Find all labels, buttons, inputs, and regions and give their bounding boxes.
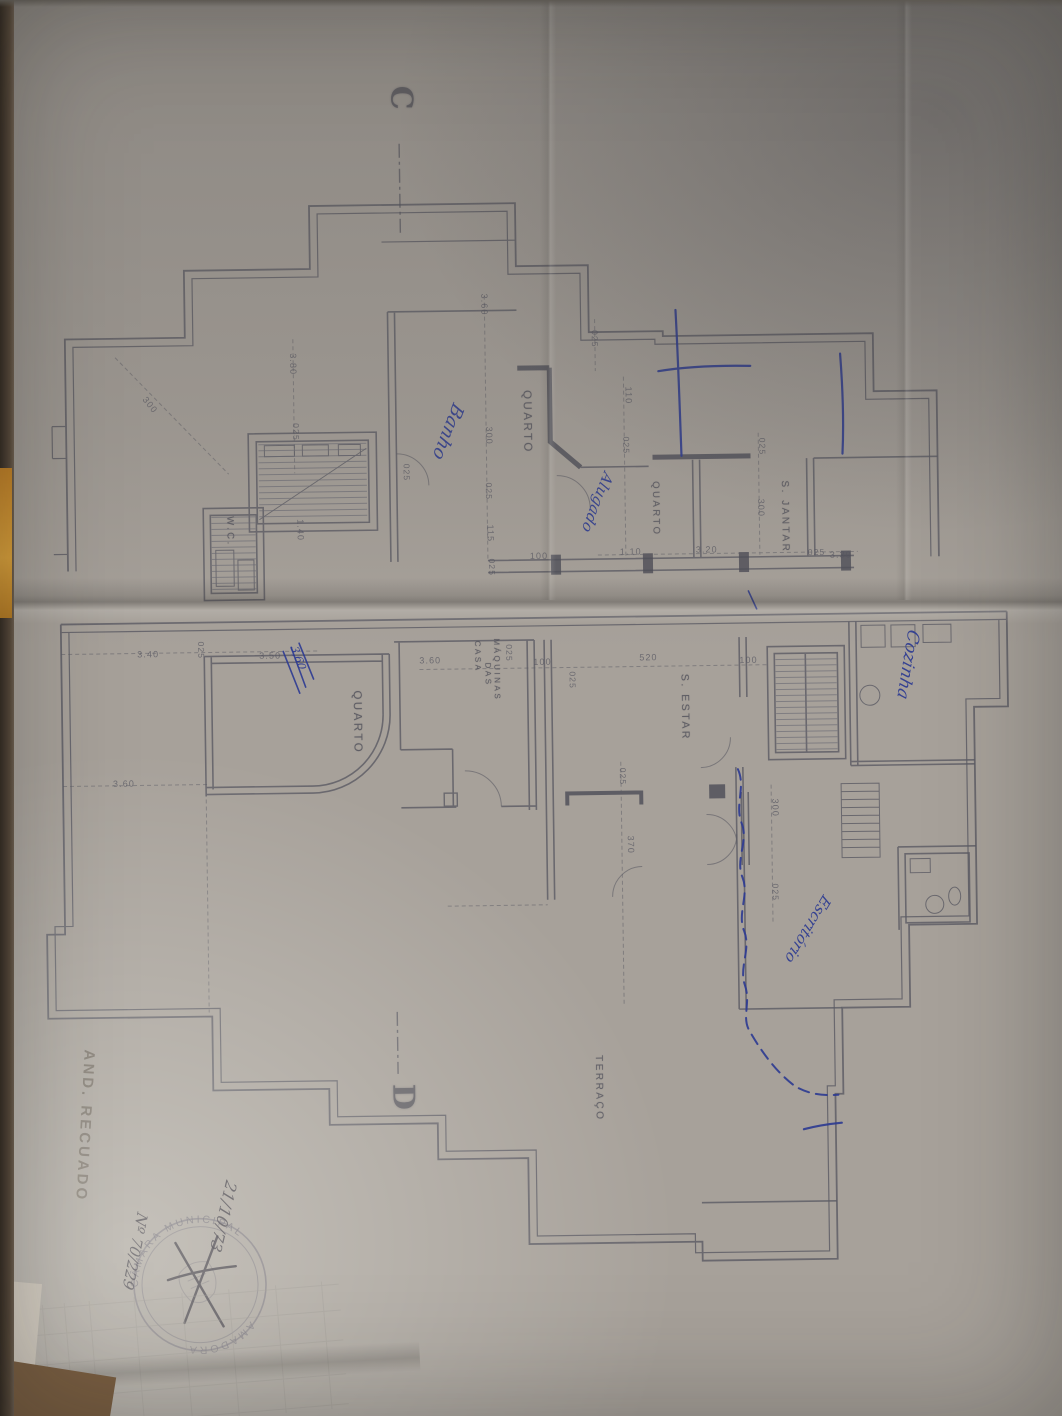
dimension-label: 025 xyxy=(618,768,627,786)
dimension-label: 025 xyxy=(771,884,780,902)
note-escritorio: Escritório xyxy=(782,892,833,966)
dimension-label: 300 xyxy=(756,499,765,517)
dimension-label: 300 xyxy=(770,799,779,817)
dimension-label: 520 xyxy=(639,653,657,662)
note-alugado: Alugado xyxy=(579,469,615,535)
section-marker-d: D xyxy=(387,1084,417,1110)
room-label-wc: W.C. xyxy=(225,516,235,547)
blueprint-photo: CÂMARA MUNICIPAL AMADORA CDQUARTOQUARTOQ… xyxy=(0,0,1062,1416)
dimension-label: 025 xyxy=(568,671,577,689)
dimension-label: 100 xyxy=(739,656,757,665)
stamp-note-number: Nº 70/229 xyxy=(120,1210,149,1291)
dimension-label: 110 xyxy=(624,387,633,405)
paper-crease-vertical-1 xyxy=(540,0,556,600)
dimension-label: 3.40 xyxy=(137,650,159,659)
dimension-label: 025 xyxy=(505,644,514,662)
dimension-label: 3.80 xyxy=(288,353,297,375)
room-label-terraco: TERRAÇO xyxy=(593,1055,604,1122)
room-label-s-estar: S. ESTAR xyxy=(679,674,690,741)
dimension-label: 025 xyxy=(292,423,301,441)
room-label-maquinas: MÁQUINAS xyxy=(492,638,501,701)
dimension-label: 300 xyxy=(141,395,159,415)
room-label-quarto-3: QUARTO xyxy=(350,690,362,754)
dimension-label: 025 xyxy=(590,330,599,348)
dimension-label: 025 xyxy=(808,548,826,557)
dimension-label: 025 xyxy=(197,642,206,660)
room-label-s-jantar: S. JANTAR xyxy=(779,480,790,553)
dimension-label: 025 xyxy=(487,558,496,576)
orange-object-edge xyxy=(0,468,12,618)
dimension-label: 300 xyxy=(484,427,493,445)
note-and-recuado: AND. RECUADO xyxy=(73,1049,96,1202)
paper-crease-vertical-2 xyxy=(896,0,912,600)
dimension-label: 025 xyxy=(402,464,411,482)
dimension-label: 1.40 xyxy=(295,519,304,541)
stamp-note-date: 21/10/73 xyxy=(207,1178,238,1254)
room-label-casa: CASA xyxy=(473,641,481,673)
desk-edge-left xyxy=(0,0,14,1416)
dimension-label: 370 xyxy=(626,836,635,854)
dimension-label: 1.10 xyxy=(620,547,642,556)
dimension-label: 3.60 xyxy=(419,656,441,665)
room-label-quarto-2: QUARTO xyxy=(650,481,660,536)
room-label-das: DAS xyxy=(483,663,491,687)
note-cozinha: Cozinha xyxy=(893,627,921,701)
dimension-label: 025 xyxy=(484,483,493,501)
note-correction-360: 3,60 xyxy=(288,645,308,670)
note-banho: Banho xyxy=(429,400,466,463)
dimension-label: 3.20 xyxy=(696,545,718,554)
dimension-label: 100 xyxy=(533,658,551,667)
dimension-label: 3.30 xyxy=(830,551,852,560)
dimension-label: 3.60 xyxy=(113,780,135,789)
dimension-label: 115 xyxy=(485,524,494,542)
dimension-label: 025 xyxy=(622,437,631,455)
room-label-quarto-1: QUARTO xyxy=(520,390,532,454)
dimension-label: 025 xyxy=(758,438,767,456)
dimension-label: 3.50 xyxy=(259,651,281,660)
photo-top-edge xyxy=(0,0,1062,7)
section-marker-c: C xyxy=(385,86,415,110)
dimension-label: 3.60 xyxy=(479,294,488,316)
